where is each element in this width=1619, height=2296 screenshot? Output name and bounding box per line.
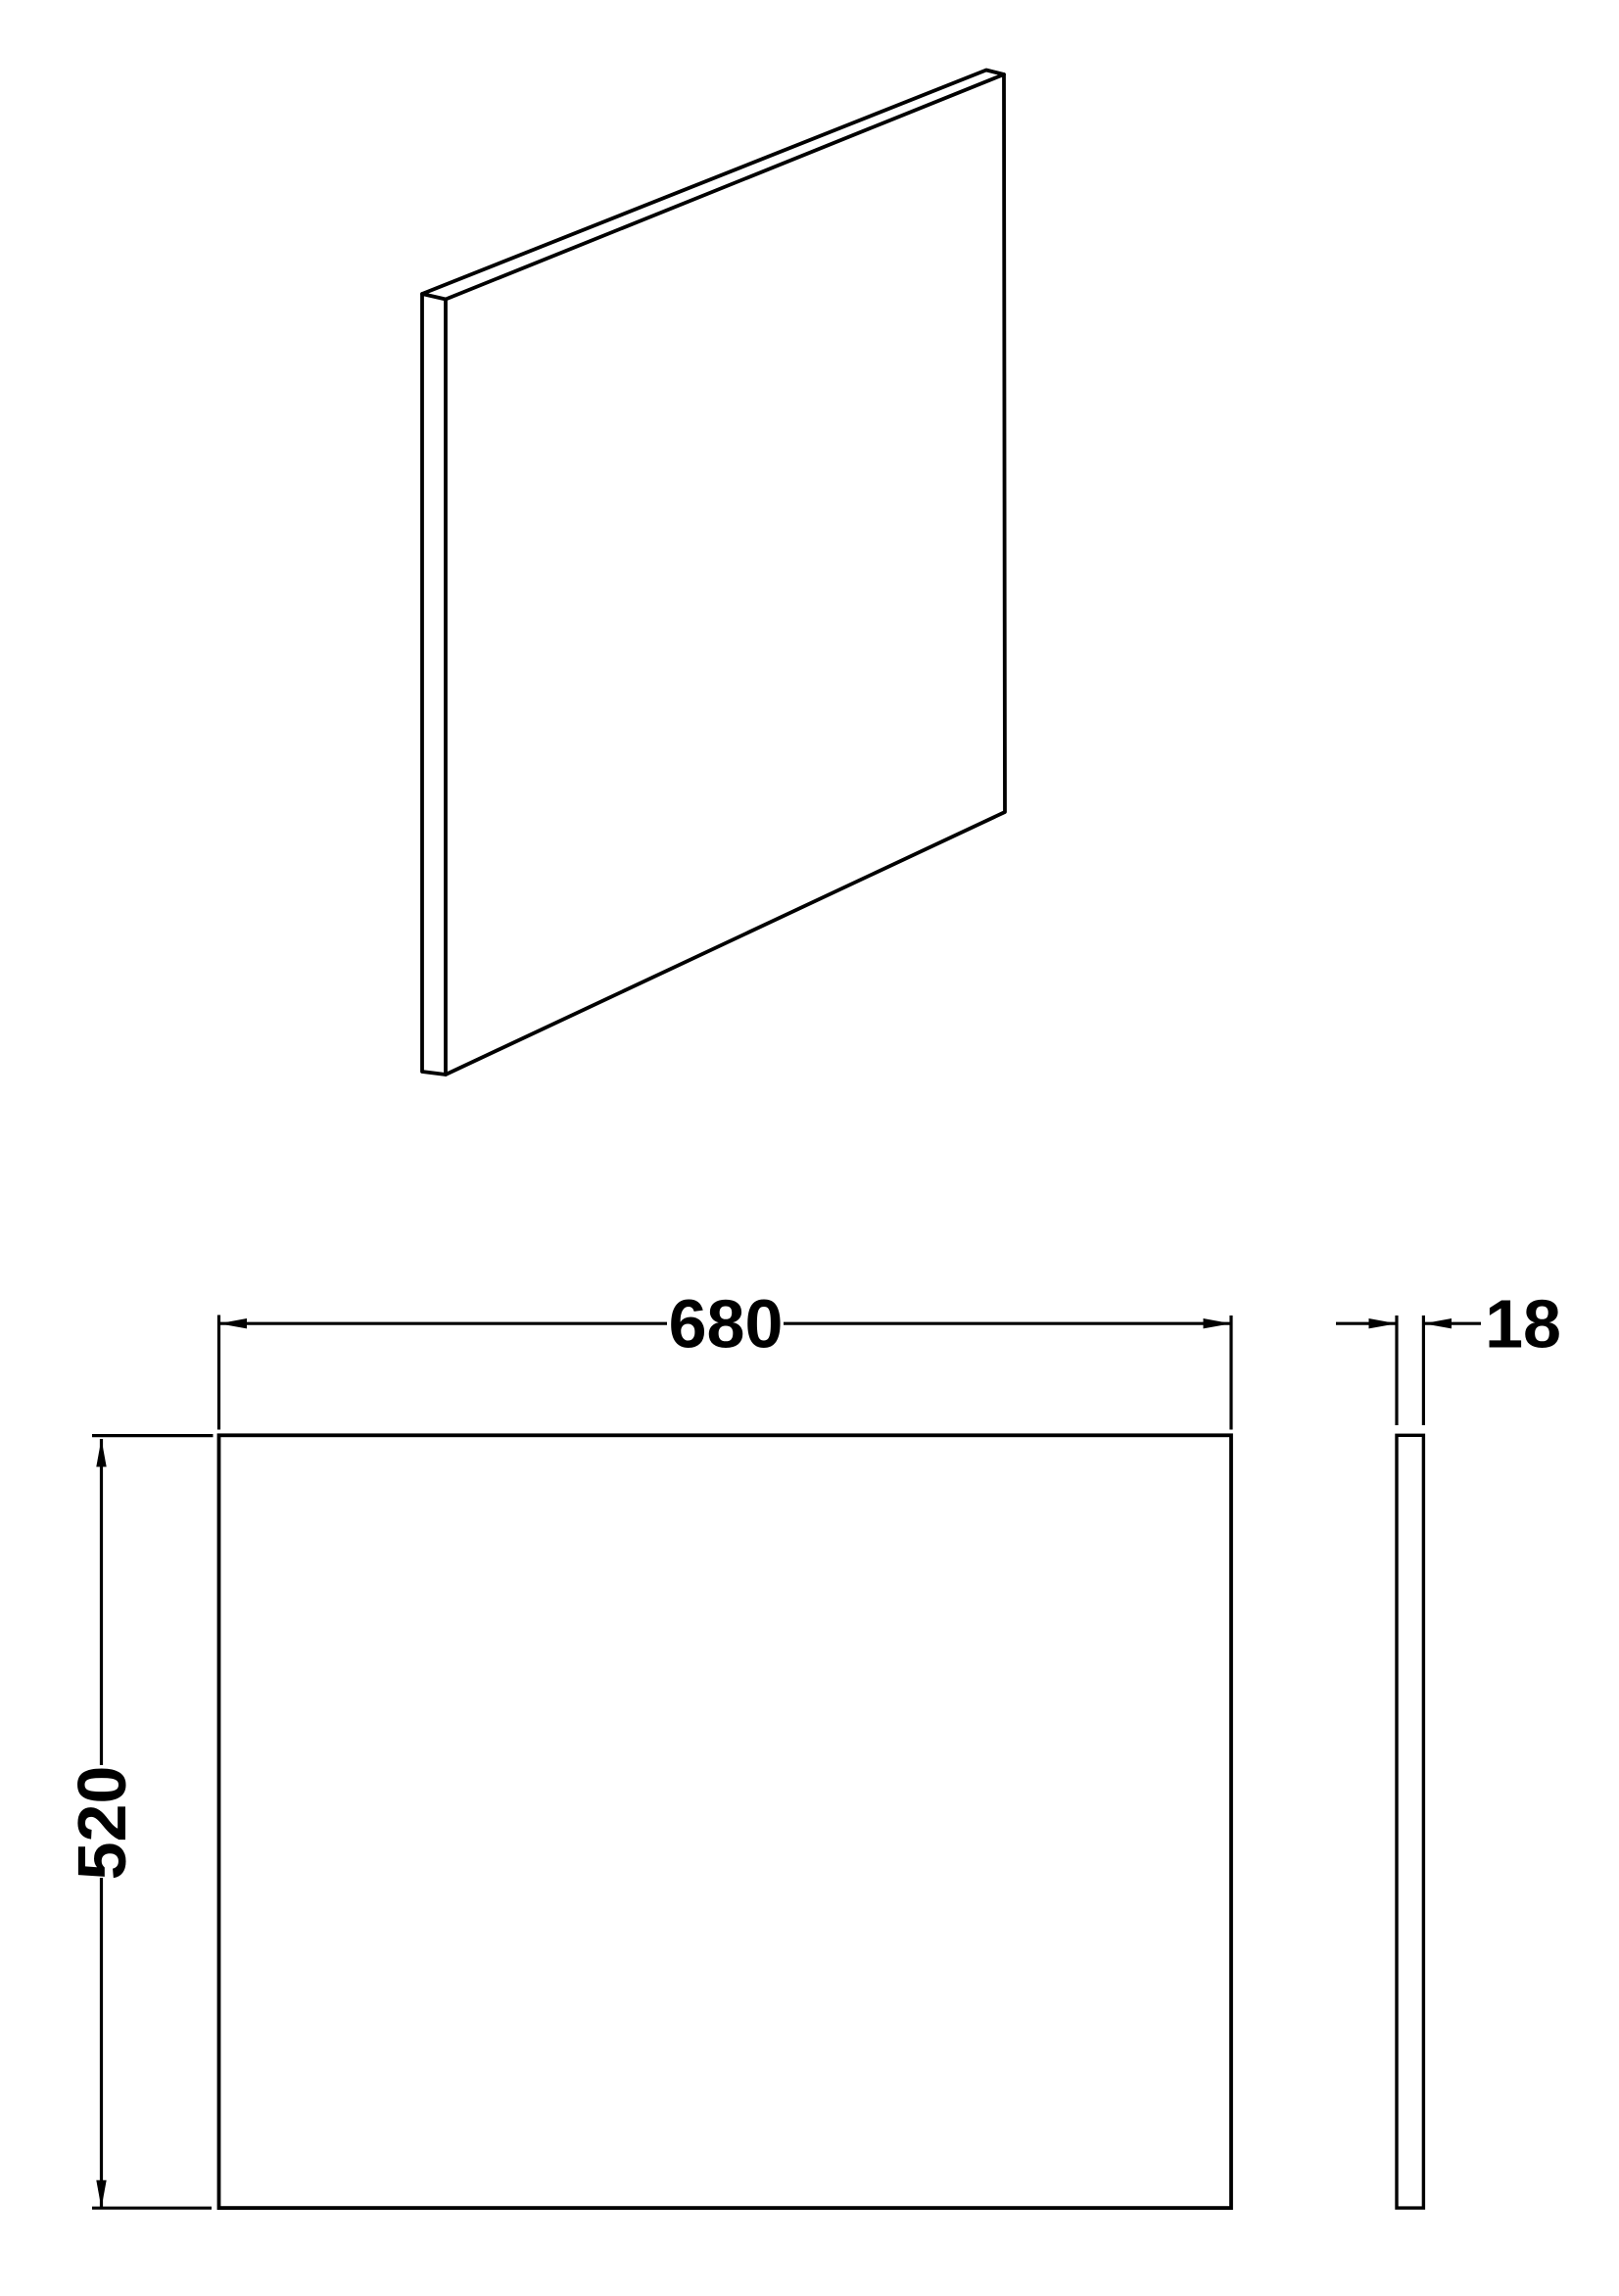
- svg-text:18: 18: [1485, 1286, 1561, 1363]
- svg-text:680: 680: [669, 1286, 784, 1363]
- svg-text:520: 520: [64, 1766, 140, 1881]
